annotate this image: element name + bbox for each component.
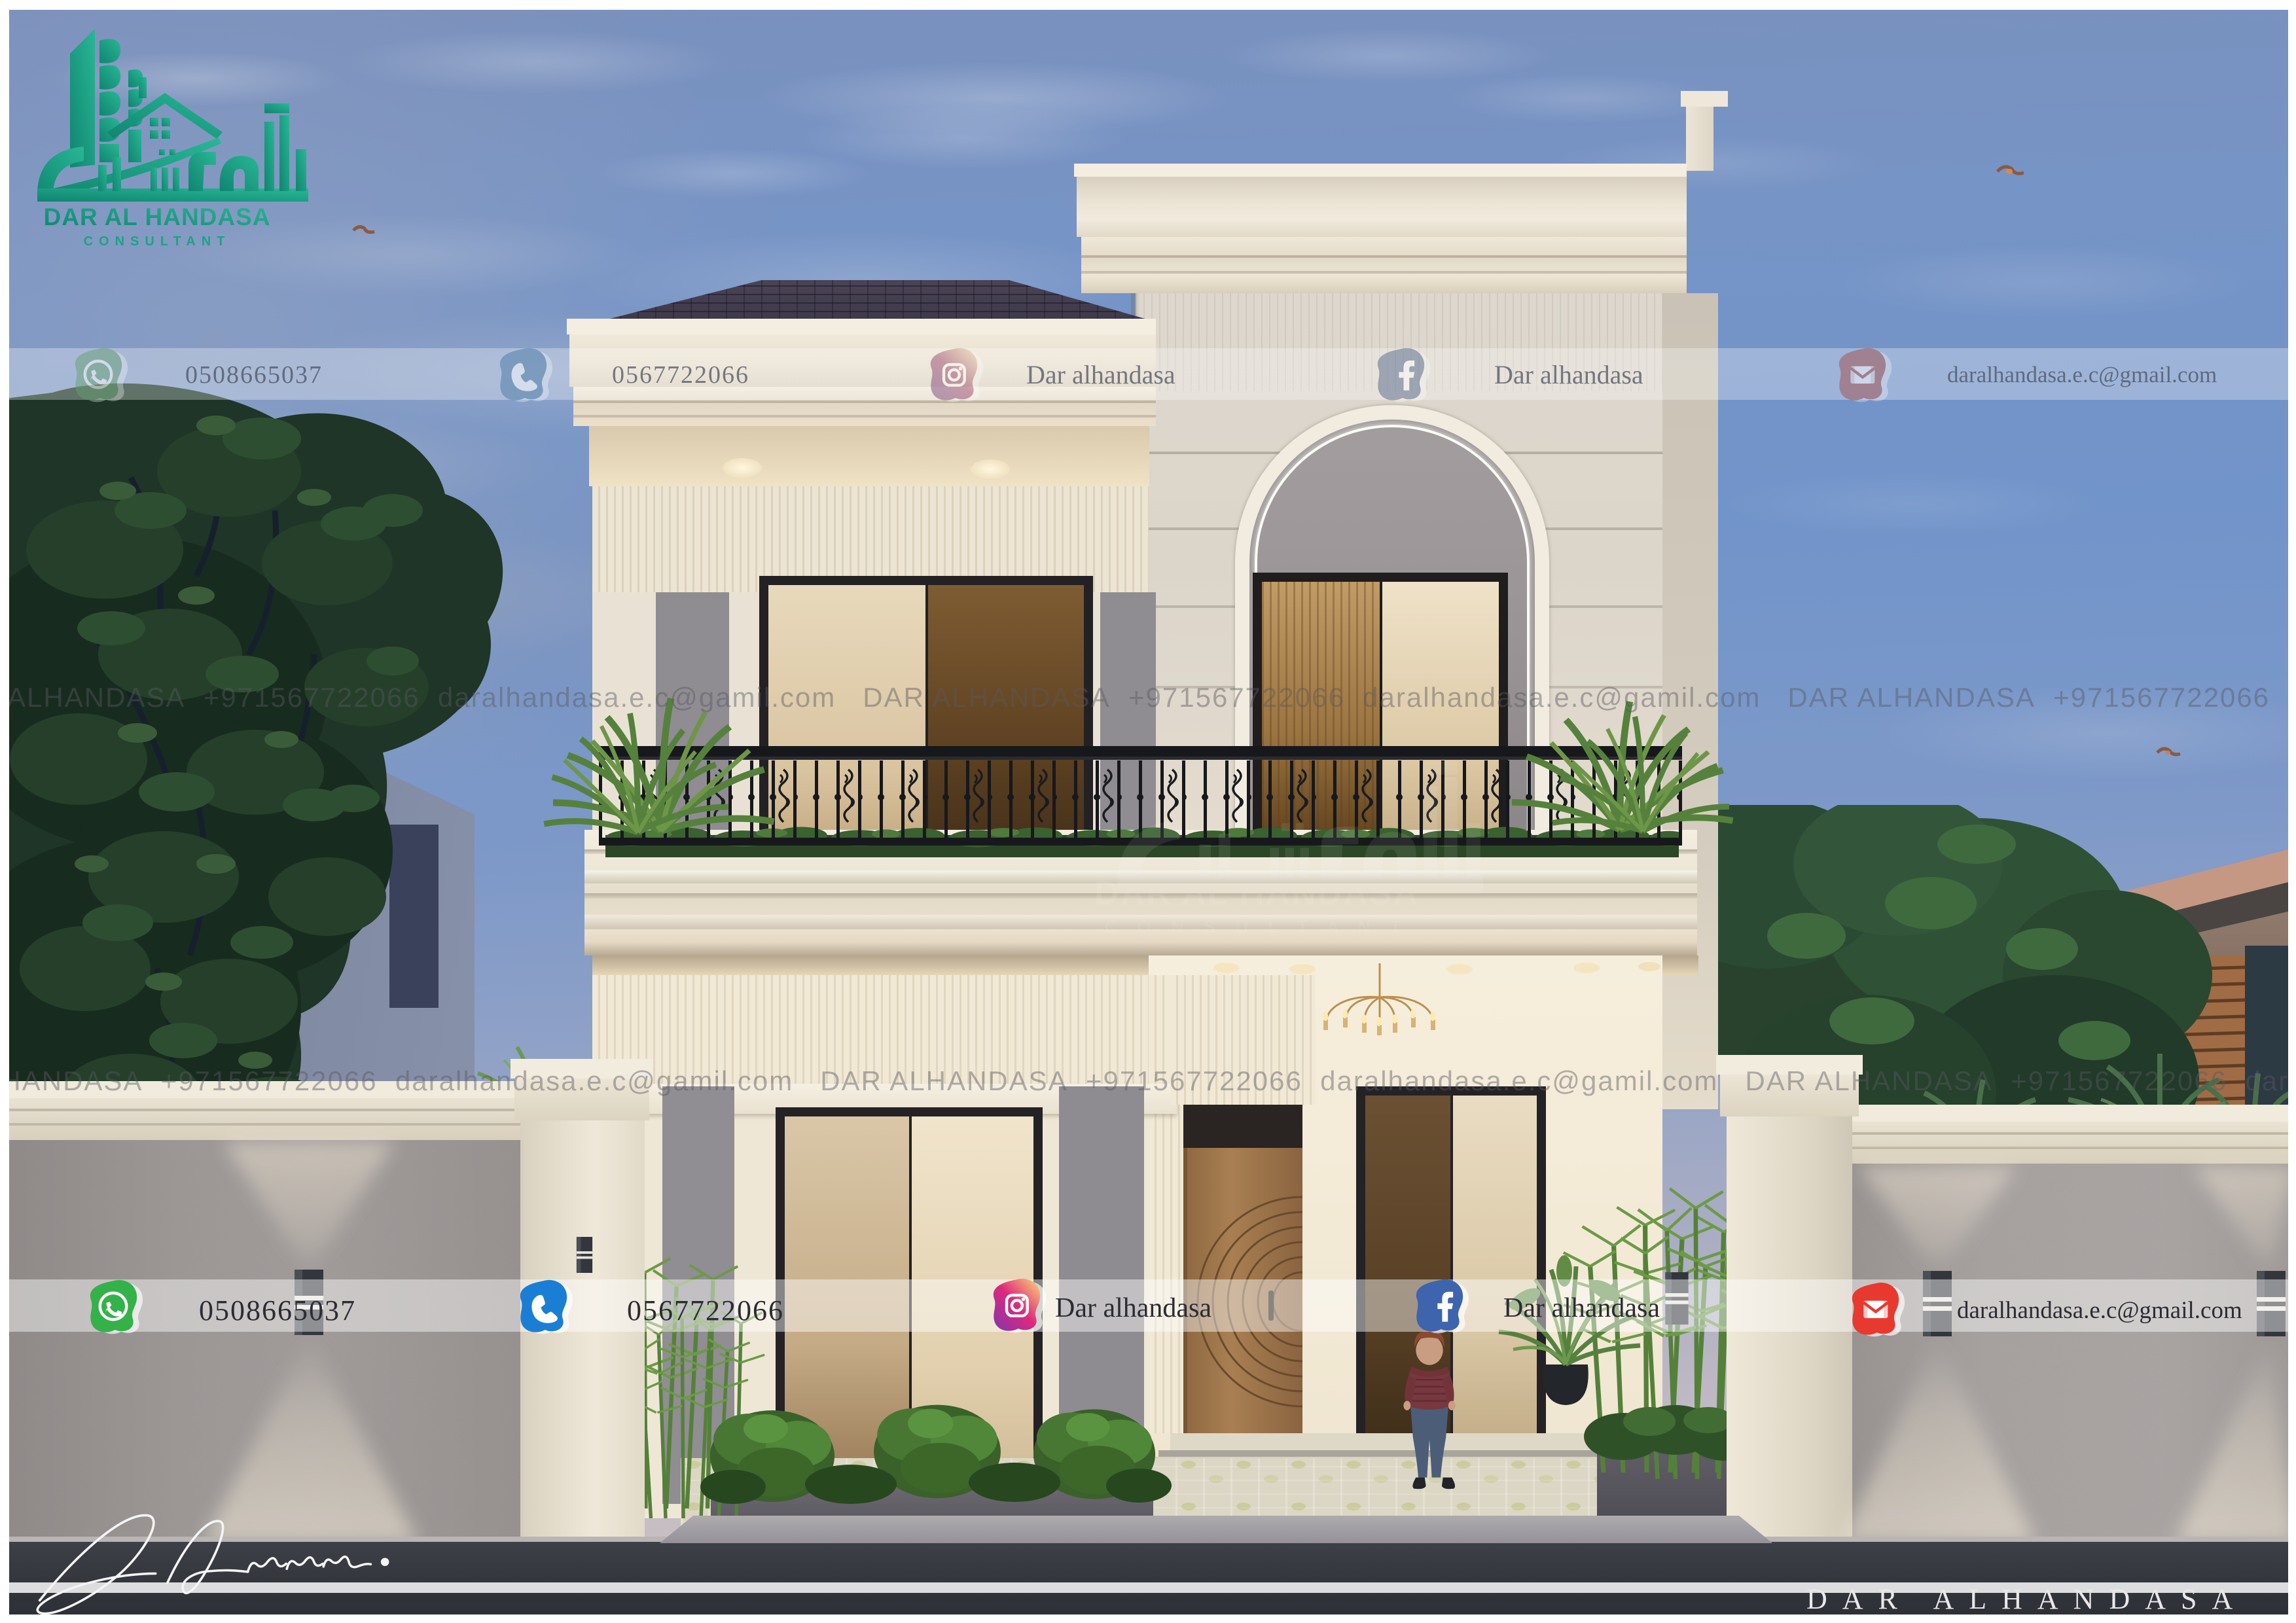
svg-text:DAR AL HANDASA: DAR AL HANDASA — [44, 204, 271, 230]
svg-text:CONSULTANT: CONSULTANT — [84, 234, 231, 249]
svg-text:DAR AL HANDASA: DAR AL HANDASA — [1094, 874, 1419, 912]
svg-text:C O N S U L T A N T: C O N S U L T A N T — [1105, 917, 1408, 936]
